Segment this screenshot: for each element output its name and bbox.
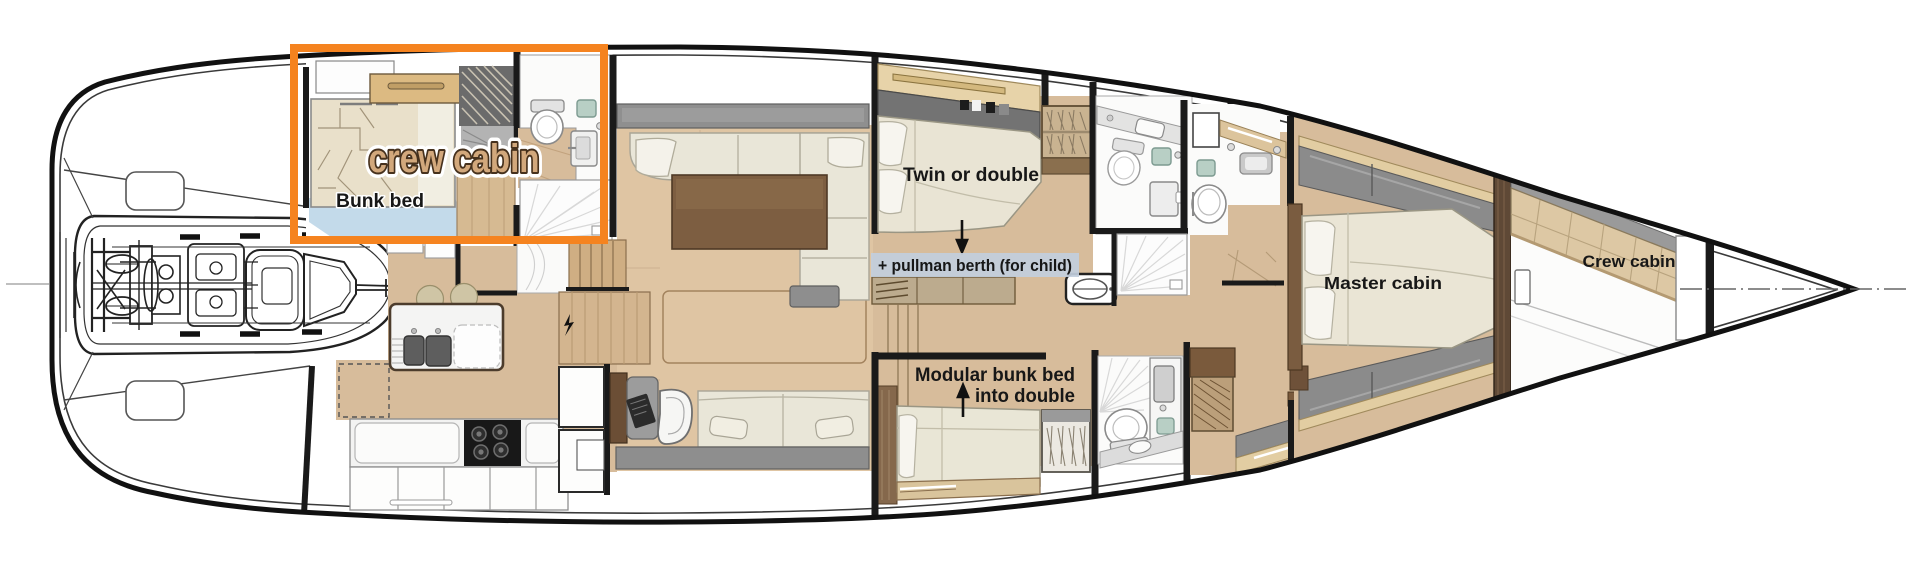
svg-text:+ pullman berth (for child): + pullman berth (for child)	[878, 256, 1072, 275]
svg-text:crew cabin: crew cabin	[369, 137, 540, 181]
svg-text:Modular bunk bed: Modular bunk bed	[915, 365, 1075, 386]
svg-text:Master cabin: Master cabin	[1324, 273, 1442, 293]
svg-text:Bunk bed: Bunk bed	[336, 191, 424, 212]
svg-text:Twin or double: Twin or double	[903, 165, 1039, 186]
svg-text:into double: into double	[975, 386, 1075, 407]
svg-text:Crew cabin: Crew cabin	[1583, 253, 1676, 271]
